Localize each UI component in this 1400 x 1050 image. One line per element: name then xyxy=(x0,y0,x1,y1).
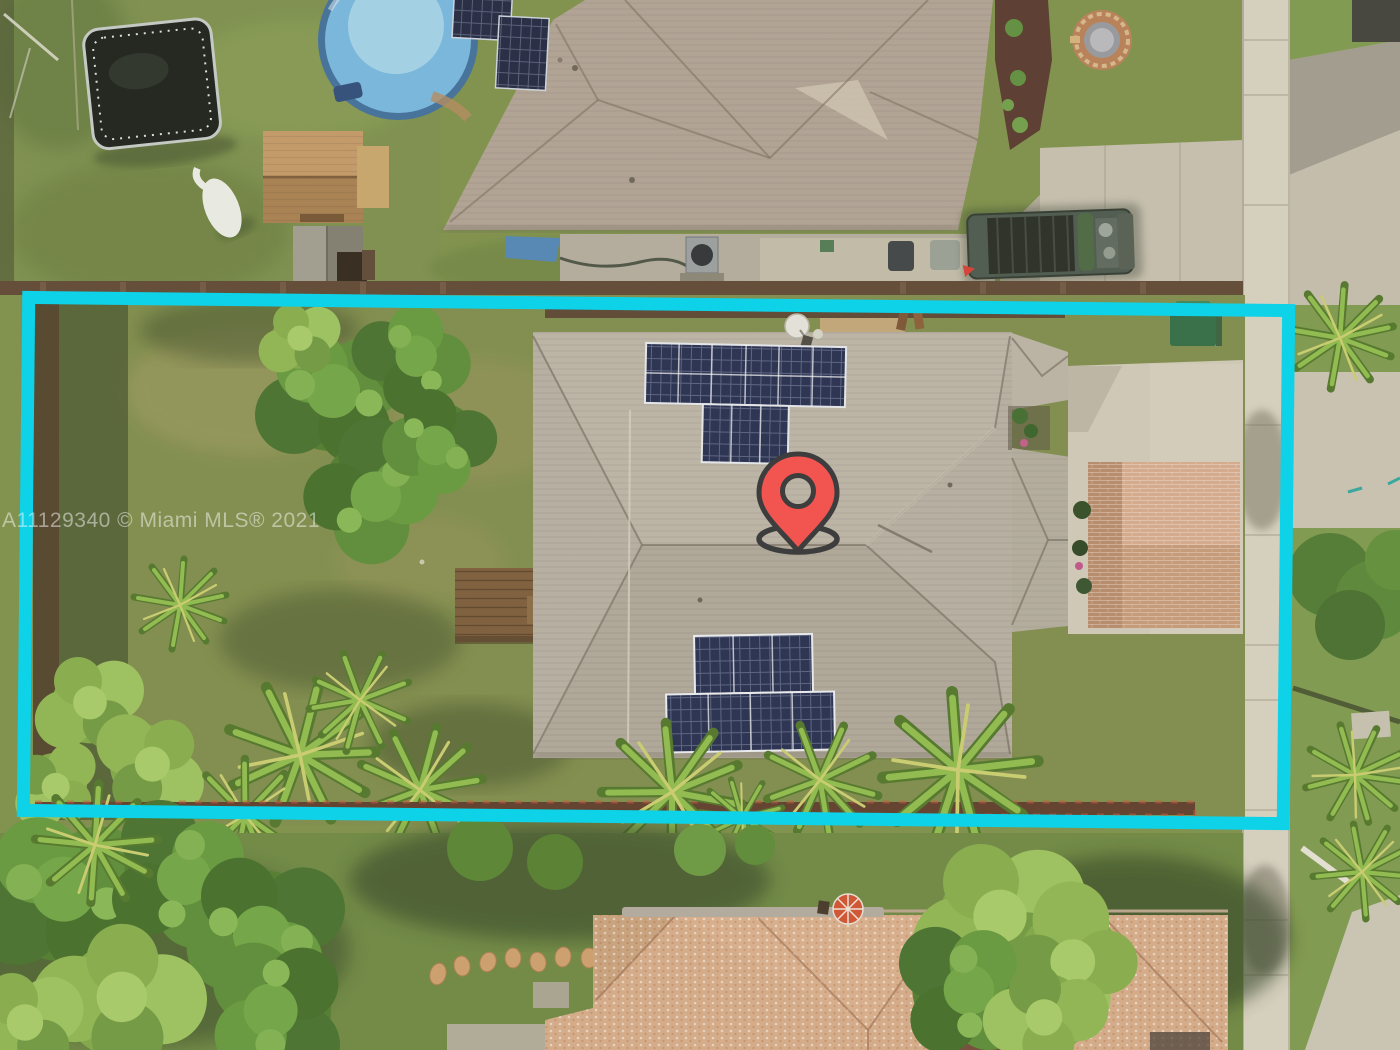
mls-watermark: A11129340 © Miami MLS® 2021 xyxy=(2,509,320,533)
property-boundary-outline xyxy=(23,297,1288,823)
aerial-property-photo: A11129340 © Miami MLS® 2021 xyxy=(0,0,1400,1050)
location-pin-icon xyxy=(759,454,837,552)
pin-body xyxy=(759,454,837,551)
